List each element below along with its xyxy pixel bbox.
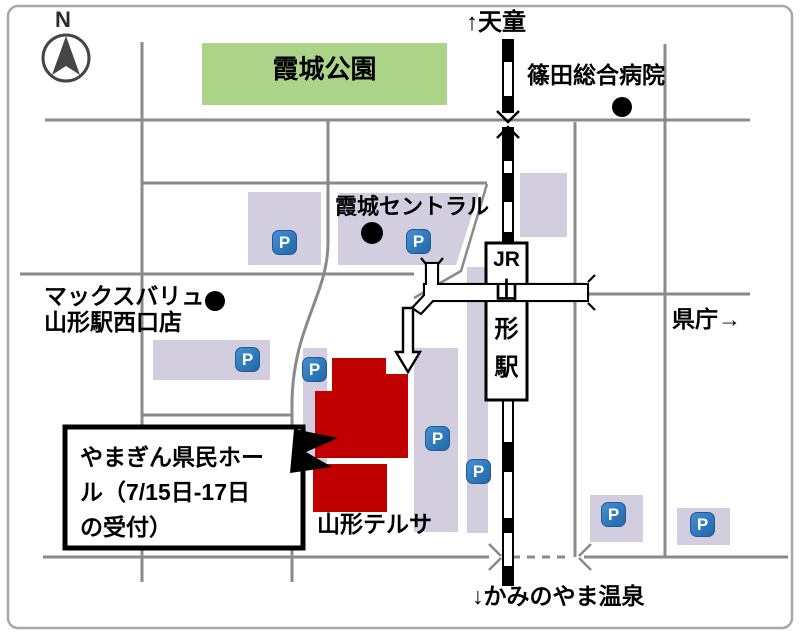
station-label-jr: JR (486, 247, 527, 273)
parking-icon-label: P (309, 360, 320, 380)
maxvalu-location-dot (205, 291, 225, 311)
kajo-central-label: 霞城セントラル (335, 194, 489, 219)
station-label-char: 山 (486, 273, 527, 311)
railway-tie (503, 442, 513, 472)
callout-text-line1: やまぎん県民ホー (80, 440, 298, 475)
building-east-of-rail (520, 173, 567, 237)
parking-icon-label: P (413, 232, 424, 252)
kajo-central-location-dot (361, 222, 383, 244)
railway-tie (503, 40, 513, 62)
railway-tie (503, 232, 513, 243)
railway-tie (503, 128, 513, 161)
railway-tie (503, 173, 513, 202)
parking-icon-label: P (279, 233, 290, 253)
parking-icon: P (690, 512, 715, 537)
station-label: JR 山 形 駅 (486, 247, 527, 387)
direction-north-label: ↑天童 (466, 9, 526, 37)
yamagata-access-map: N 霞城公園 ↑天童 篠田総合病院 霞城セントラル マックスバリュ 山形駅西口店… (0, 0, 800, 640)
compass-n-label: N (55, 7, 71, 32)
hospital-location-dot (612, 97, 632, 117)
parking-icon: P (425, 426, 450, 451)
terusa-label: 山形テルサ (317, 511, 432, 537)
railway-tie (503, 518, 513, 533)
parking-icon: P (272, 230, 297, 255)
maxvalu-label-line1: マックスバリュ (44, 283, 204, 309)
station-label-char: 形 (486, 311, 527, 349)
direction-south-label: ↓かみのやま温泉 (472, 583, 645, 609)
parking-icon-label: P (242, 350, 253, 370)
parking-icon-label: P (608, 505, 619, 525)
station-label-char: 駅 (486, 349, 527, 387)
parking-icon: P (601, 502, 626, 527)
parking-icon-label: P (473, 462, 484, 482)
parking-icon: P (466, 459, 491, 484)
hospital-label: 篠田総合病院 (527, 62, 665, 88)
maxvalu-label-line2: 山形駅西口店 (44, 309, 182, 335)
parking-icon: P (302, 357, 327, 382)
park-label: 霞城公園 (202, 55, 447, 85)
parking-icon-label: P (697, 515, 708, 535)
hall-building-annex (313, 464, 387, 512)
callout-text-line2: ル（7/15日-17日 (80, 475, 298, 510)
railway-tie (503, 96, 513, 112)
compass (43, 35, 89, 81)
parking-icon-label: P (432, 429, 443, 449)
direction-east-label: 県庁→ (672, 306, 741, 332)
callout-text-line3: の受付） (80, 510, 298, 545)
parking-icon: P (406, 229, 431, 254)
callout-text: やまぎん県民ホー ル（7/15日-17日 の受付） (80, 440, 298, 545)
parking-icon: P (235, 347, 260, 372)
